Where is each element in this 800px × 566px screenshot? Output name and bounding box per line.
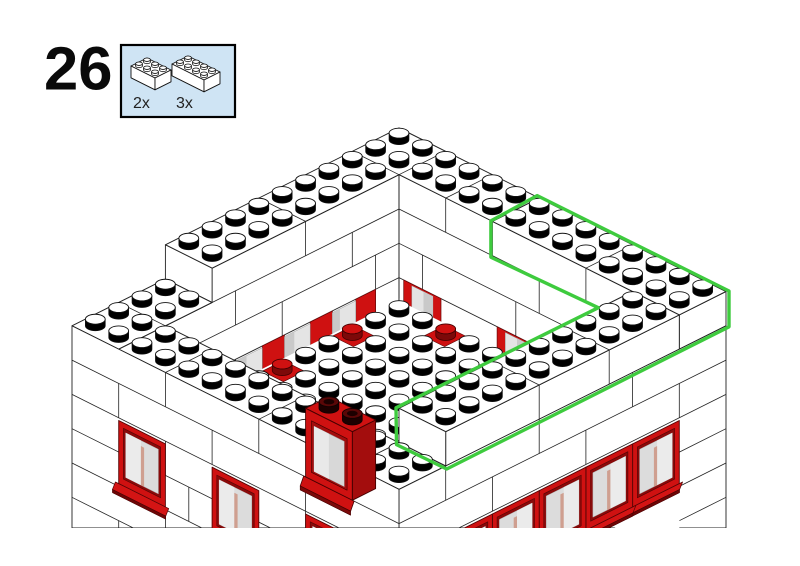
svg-text:2x: 2x — [133, 95, 150, 112]
svg-text:26: 26 — [44, 35, 112, 104]
svg-text:3x: 3x — [176, 95, 193, 112]
